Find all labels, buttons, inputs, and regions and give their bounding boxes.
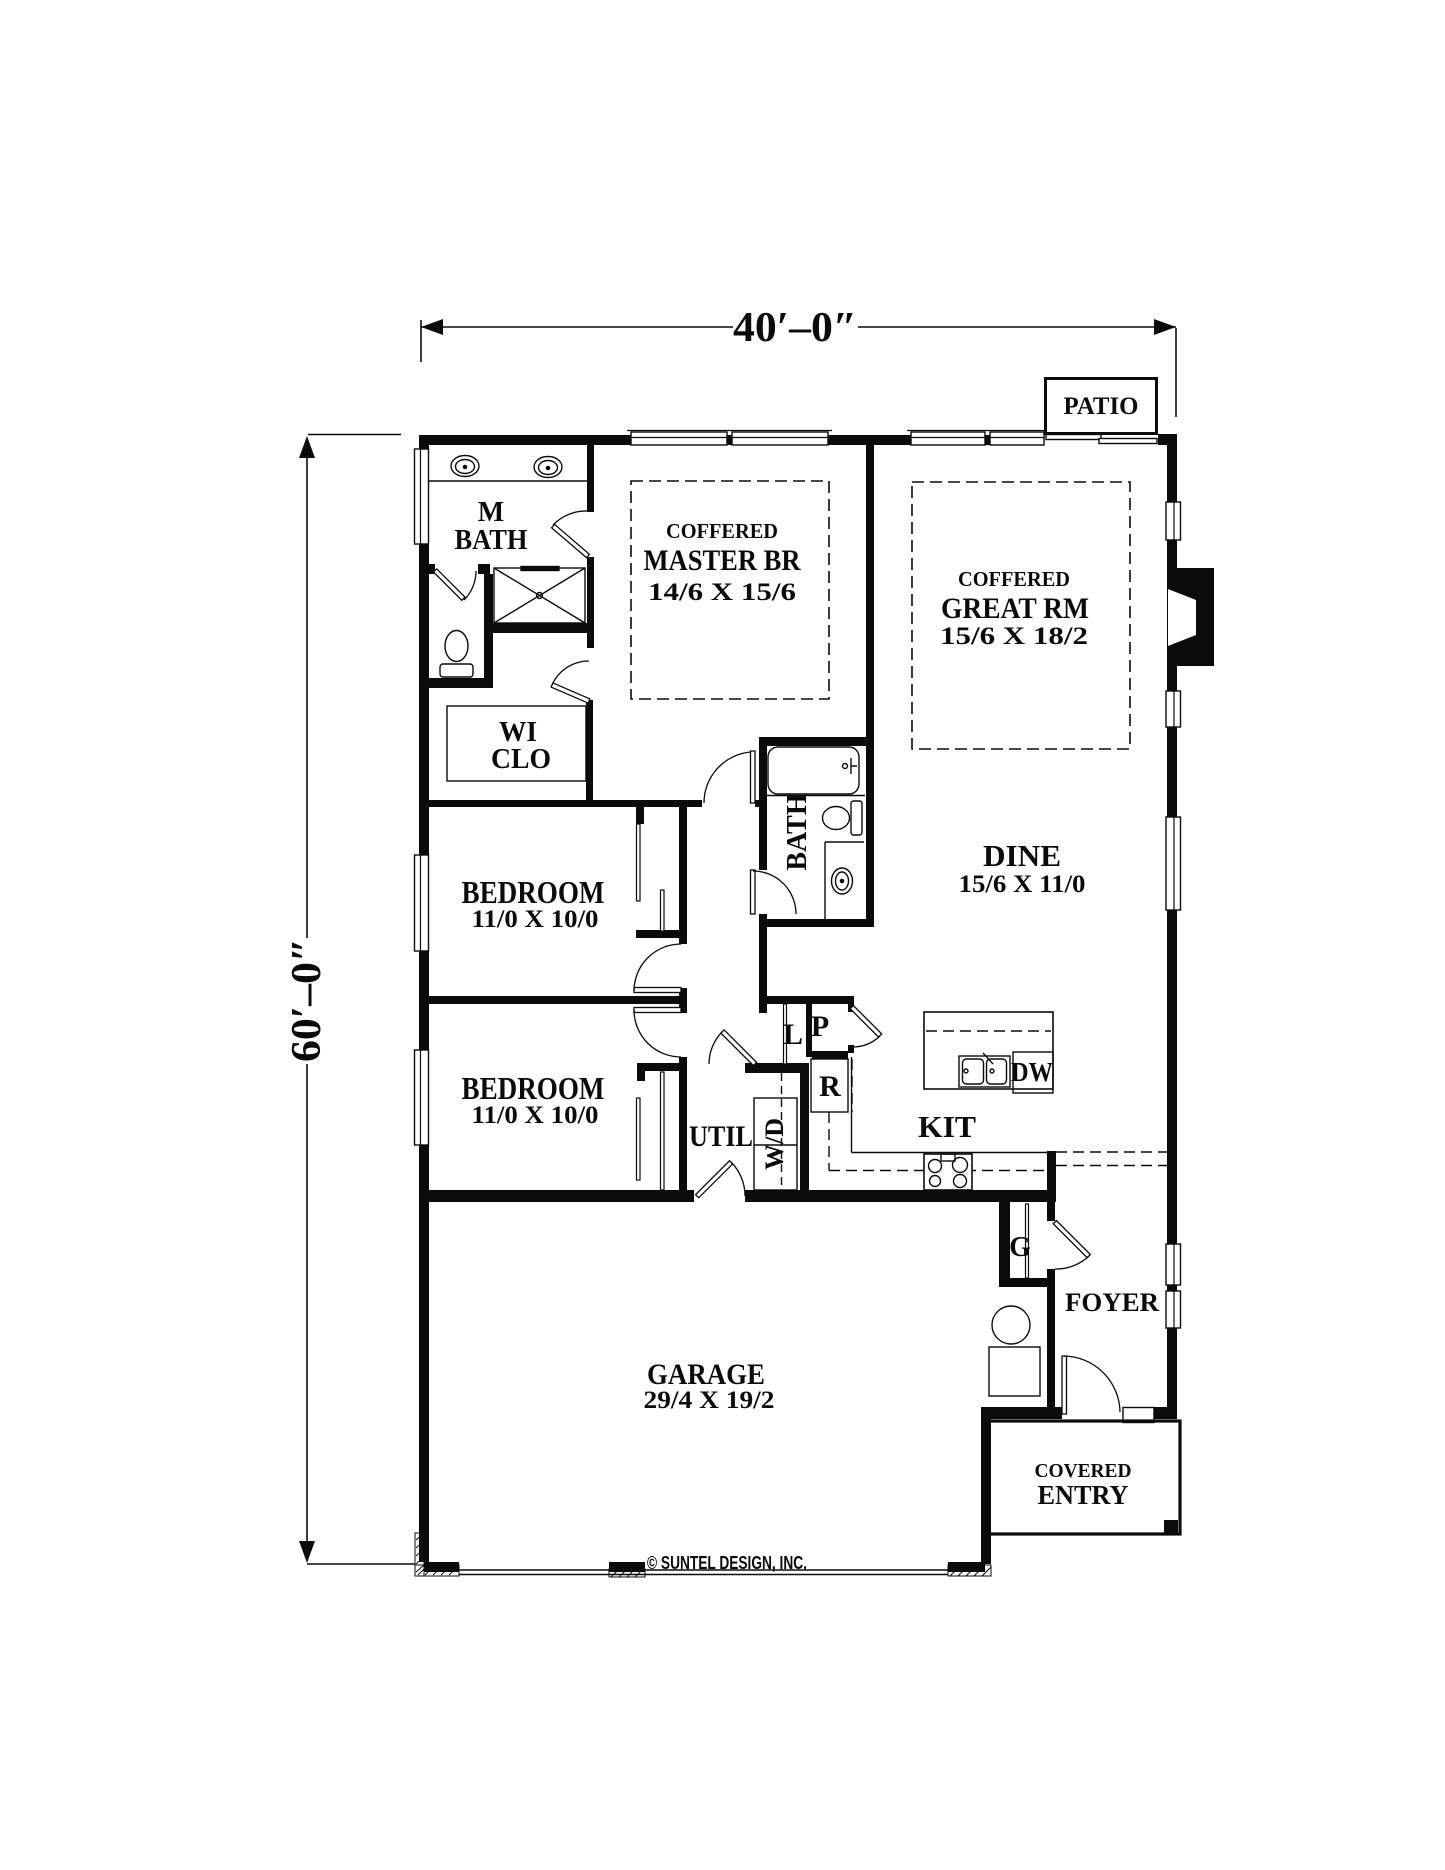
svg-text:P: P: [811, 1010, 829, 1043]
svg-text:DW: DW: [1011, 1057, 1053, 1087]
svg-text:15/6 X 18/2: 15/6 X 18/2: [940, 623, 1088, 650]
svg-text:© SUNTEL DESIGN, INC.: © SUNTEL DESIGN, INC.: [647, 1552, 807, 1573]
svg-text:KIT: KIT: [918, 1109, 976, 1144]
svg-text:FOYER: FOYER: [1065, 1288, 1159, 1317]
svg-text:COFFERED: COFFERED: [666, 519, 778, 543]
svg-text:GREAT RM: GREAT RM: [941, 592, 1089, 625]
svg-text:CLO: CLO: [491, 744, 551, 775]
svg-text:W/D: W/D: [760, 1118, 789, 1170]
svg-text:PATIO: PATIO: [1064, 393, 1139, 420]
svg-text:60′–0″: 60′–0″: [284, 938, 330, 1062]
svg-text:DINE: DINE: [983, 838, 1061, 873]
svg-text:11/0 X 10/0: 11/0 X 10/0: [472, 1102, 599, 1129]
svg-text:14/6 X 15/6: 14/6 X 15/6: [648, 579, 796, 606]
svg-text:40′–0″: 40′–0″: [733, 305, 857, 351]
svg-text:COVERED: COVERED: [1035, 1460, 1132, 1482]
svg-text:11/0 X 10/0: 11/0 X 10/0: [472, 906, 599, 933]
svg-text:BATH: BATH: [782, 793, 813, 870]
svg-text:BEDROOM: BEDROOM: [462, 1070, 605, 1106]
svg-text:UTIL: UTIL: [689, 1120, 753, 1153]
svg-text:BATH: BATH: [455, 525, 528, 556]
svg-text:MASTER BR: MASTER BR: [644, 544, 801, 577]
svg-text:ENTRY: ENTRY: [1038, 1480, 1129, 1510]
svg-text:BEDROOM: BEDROOM: [462, 874, 605, 910]
svg-text:29/4 X 19/2: 29/4 X 19/2: [644, 1387, 775, 1414]
svg-text:M: M: [478, 497, 504, 528]
svg-text:15/6 X 11/0: 15/6 X 11/0: [959, 871, 1086, 898]
svg-text:L: L: [783, 1018, 803, 1051]
svg-text:R: R: [819, 1070, 841, 1103]
svg-text:COFFERED: COFFERED: [958, 567, 1070, 591]
svg-text:G: G: [1009, 1232, 1031, 1263]
